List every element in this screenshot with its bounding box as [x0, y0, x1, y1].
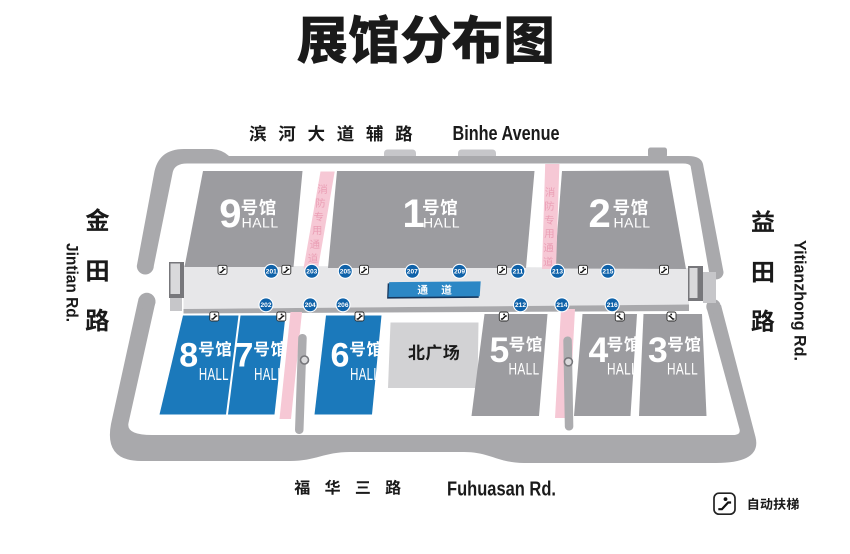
svg-text:205: 205: [340, 269, 351, 276]
svg-text:2: 2: [589, 192, 611, 236]
svg-text:HALL: HALL: [199, 364, 229, 384]
svg-text:4: 4: [589, 330, 609, 370]
svg-text:1: 1: [403, 192, 425, 236]
svg-text:HALL: HALL: [614, 215, 651, 231]
svg-text:203: 203: [306, 269, 317, 276]
svg-text:HALL: HALL: [254, 364, 284, 384]
svg-text:HALL: HALL: [607, 361, 638, 379]
svg-text:7: 7: [235, 337, 254, 375]
svg-text:201: 201: [266, 269, 277, 276]
svg-text:214: 214: [556, 302, 567, 309]
svg-text:211: 211: [513, 269, 524, 276]
svg-text:Yitianzhong Rd.: Yitianzhong Rd.: [791, 240, 810, 361]
svg-text:206: 206: [337, 302, 348, 309]
svg-text:3: 3: [648, 330, 668, 370]
svg-text:204: 204: [305, 302, 316, 309]
svg-text:5: 5: [490, 330, 510, 370]
svg-text:HALL: HALL: [667, 361, 698, 379]
svg-text:HALL: HALL: [350, 364, 380, 384]
svg-text:Fuhuasan Rd.: Fuhuasan Rd.: [447, 478, 556, 500]
svg-text:HALL: HALL: [242, 215, 279, 231]
svg-text:215: 215: [602, 269, 613, 276]
svg-text:212: 212: [515, 302, 526, 309]
svg-text:9: 9: [219, 192, 241, 236]
svg-text:202: 202: [260, 302, 271, 309]
svg-text:216: 216: [607, 302, 618, 309]
svg-text:HALL: HALL: [509, 361, 540, 379]
svg-text:207: 207: [407, 269, 418, 276]
svg-text:Binhe Avenue: Binhe Avenue: [453, 123, 560, 145]
svg-text:Jintian Rd.: Jintian Rd.: [63, 243, 82, 322]
svg-text:209: 209: [454, 269, 465, 276]
svg-text:6: 6: [331, 337, 350, 375]
svg-text:8: 8: [179, 337, 198, 375]
svg-text:213: 213: [552, 269, 563, 276]
svg-text:HALL: HALL: [423, 215, 460, 231]
